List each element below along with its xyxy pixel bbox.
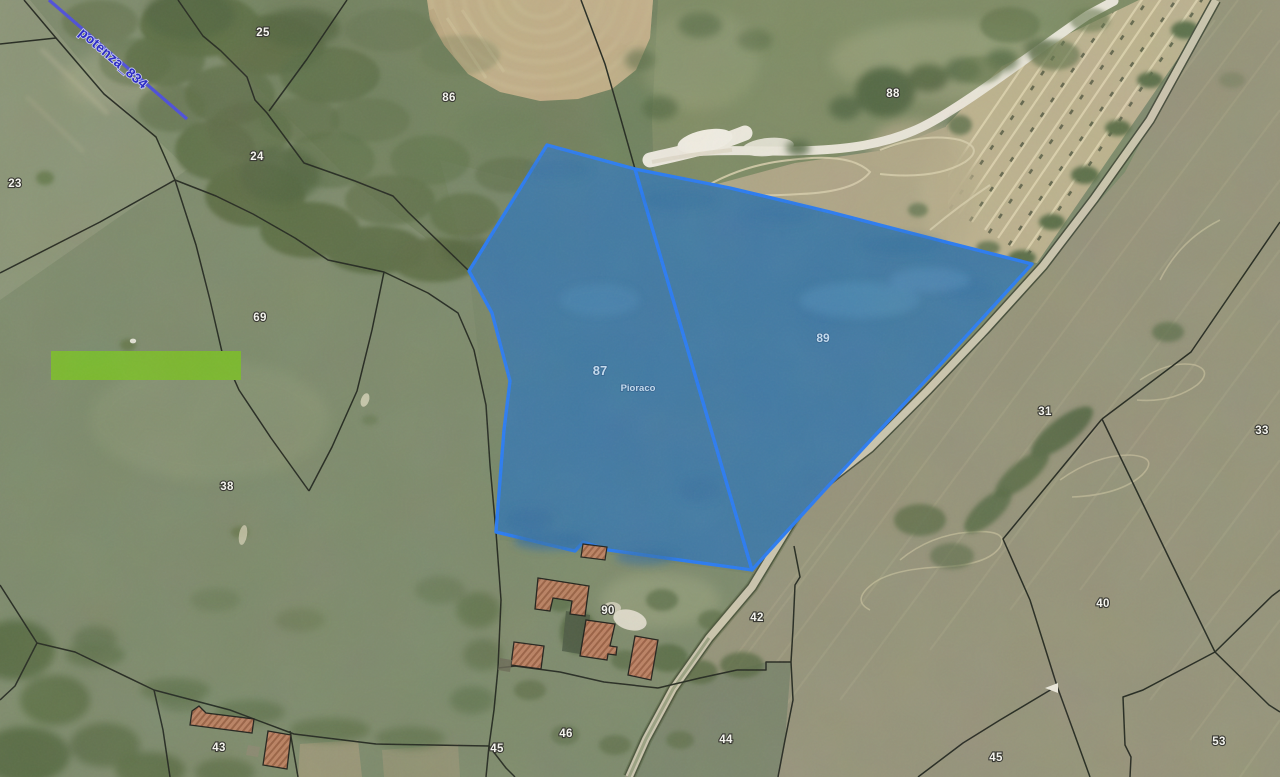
svg-text:46: 46 [559,728,573,740]
svg-text:Pioraco: Pioraco [621,383,656,394]
svg-text:89: 89 [816,331,830,345]
svg-text:45: 45 [989,752,1003,764]
svg-text:24: 24 [250,151,264,163]
svg-text:44: 44 [719,734,733,746]
svg-text:33: 33 [1255,425,1269,437]
svg-text:86: 86 [442,92,456,104]
svg-text:69: 69 [253,312,267,324]
svg-text:87: 87 [593,363,607,378]
svg-text:25: 25 [256,27,270,39]
svg-text:42: 42 [750,612,764,624]
svg-text:31: 31 [1038,406,1052,418]
svg-text:88: 88 [886,88,900,100]
svg-text:38: 38 [220,481,234,493]
svg-text:53: 53 [1212,736,1226,748]
svg-text:43: 43 [212,742,226,754]
svg-text:45: 45 [490,743,504,755]
svg-text:40: 40 [1096,598,1110,610]
svg-text:23: 23 [8,178,22,190]
svg-text:90: 90 [601,605,615,617]
